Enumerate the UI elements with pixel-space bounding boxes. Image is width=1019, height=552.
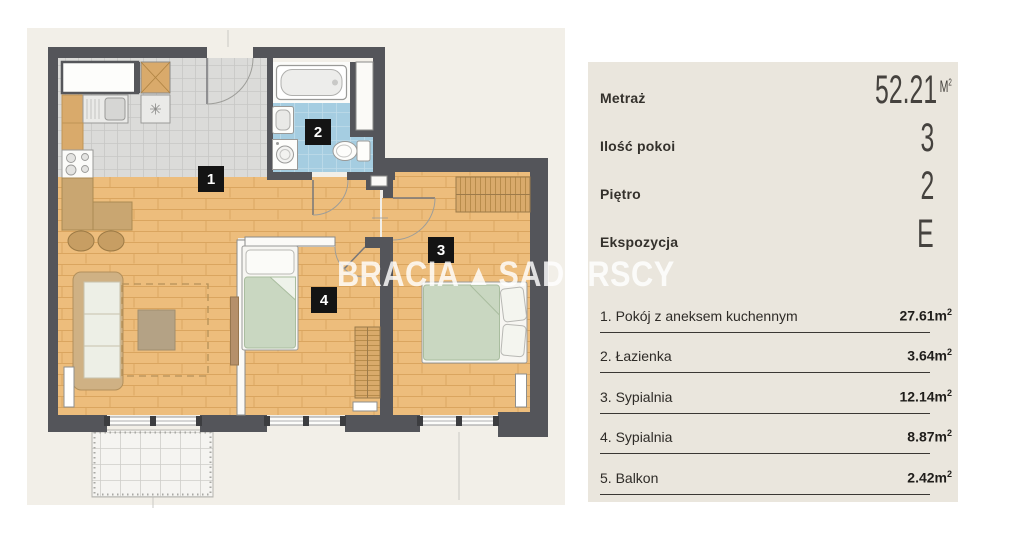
spec-label: Metraż bbox=[600, 91, 646, 105]
floorplan-page: 1 2 3 4 Metraż 52.21M2 Ilość pokoi 3 Pię… bbox=[0, 0, 1019, 552]
kitchen-counter bbox=[62, 95, 83, 123]
sliding-door-panel bbox=[231, 297, 239, 365]
kitchen-sink bbox=[83, 95, 128, 123]
property-info-panel: Metraż 52.21M2 Ilość pokoi 3 Piętro 2 Ek… bbox=[588, 62, 958, 502]
radiator bbox=[64, 367, 74, 407]
room-name: 2. Łazienka bbox=[600, 349, 672, 363]
room-list-row: 4. Sypialnia 8.87m2 bbox=[600, 414, 952, 455]
duct-shaft bbox=[356, 62, 373, 130]
pillow bbox=[500, 287, 527, 323]
stool bbox=[98, 231, 124, 251]
room-name: 1. Pokój z aneksem kuchennym bbox=[600, 309, 798, 323]
room-marker-4: 4 bbox=[311, 287, 337, 313]
toilet bbox=[333, 141, 370, 161]
bathroom-sink bbox=[273, 107, 294, 134]
room-area: 3.64m2 bbox=[907, 348, 952, 363]
room-marker-2: 2 bbox=[305, 119, 331, 145]
svg-text:3: 3 bbox=[437, 242, 445, 259]
room-list: 1. Pokój z aneksem kuchennym 27.61m2 2. … bbox=[600, 292, 952, 495]
room-marker-1: 1 bbox=[198, 166, 224, 192]
svg-text:2: 2 bbox=[314, 124, 322, 141]
coffee-table bbox=[138, 310, 175, 350]
spec-value: 52.21M2 bbox=[875, 76, 952, 105]
pillow bbox=[501, 324, 527, 357]
floor-plan: 1 2 3 4 bbox=[27, 28, 565, 508]
spec-value: E bbox=[917, 220, 934, 249]
stool bbox=[68, 231, 94, 251]
room-list-row: 1. Pokój z aneksem kuchennym 27.61m2 bbox=[600, 292, 952, 333]
spec-label: Piętro bbox=[600, 187, 641, 201]
pillar-shaft bbox=[371, 176, 387, 186]
stove bbox=[62, 150, 93, 178]
hood-unit bbox=[141, 95, 170, 123]
single-bed bbox=[242, 246, 298, 350]
wardrobe bbox=[355, 327, 380, 398]
spec-row-metraz: Metraż 52.21M2 bbox=[600, 70, 952, 118]
room-area: 8.87m2 bbox=[907, 429, 952, 444]
wardrobe bbox=[456, 177, 530, 212]
room-name: 4. Sypialnia bbox=[600, 430, 672, 444]
fridge-cabinet bbox=[62, 62, 138, 93]
spec-value: 3 bbox=[920, 124, 934, 153]
spec-row-pokoje: Ilość pokoi 3 bbox=[600, 118, 952, 166]
room-list-row: 5. Balkon 2.42m2 bbox=[600, 454, 952, 495]
radiator bbox=[353, 402, 377, 411]
svg-text:1: 1 bbox=[207, 171, 215, 188]
spec-label: Ilość pokoi bbox=[600, 139, 675, 153]
windows bbox=[104, 416, 499, 426]
bathtub bbox=[277, 66, 347, 100]
spec-row-pietro: Piętro 2 bbox=[600, 166, 952, 214]
double-bed bbox=[422, 282, 527, 363]
spec-row-ekspozycja: Ekspozycja E bbox=[600, 214, 952, 262]
sofa bbox=[73, 272, 123, 390]
room-area: 27.61m2 bbox=[899, 308, 952, 323]
spec-value: 2 bbox=[920, 172, 934, 201]
room-name: 3. Sypialnia bbox=[600, 390, 672, 404]
svg-text:4: 4 bbox=[320, 292, 329, 309]
room-area: 2.42m2 bbox=[907, 470, 952, 485]
balcony bbox=[92, 430, 213, 497]
bedroom3-window bbox=[417, 416, 499, 426]
radiator bbox=[516, 374, 527, 407]
tall-cabinet bbox=[141, 62, 170, 93]
kitchen-cabinet bbox=[62, 123, 83, 150]
room-name: 5. Balkon bbox=[600, 471, 658, 485]
bedroom4-window bbox=[264, 416, 346, 426]
room-list-row: 3. Sypialnia 12.14m2 bbox=[600, 373, 952, 414]
room-area: 12.14m2 bbox=[899, 389, 952, 404]
row-divider bbox=[600, 494, 930, 495]
spec-label: Ekspozycja bbox=[600, 235, 678, 249]
living-room-window bbox=[104, 416, 202, 426]
room-list-row: 2. Łazienka 3.64m2 bbox=[600, 333, 952, 374]
washing-machine bbox=[273, 140, 298, 170]
room-marker-3: 3 bbox=[428, 237, 454, 263]
